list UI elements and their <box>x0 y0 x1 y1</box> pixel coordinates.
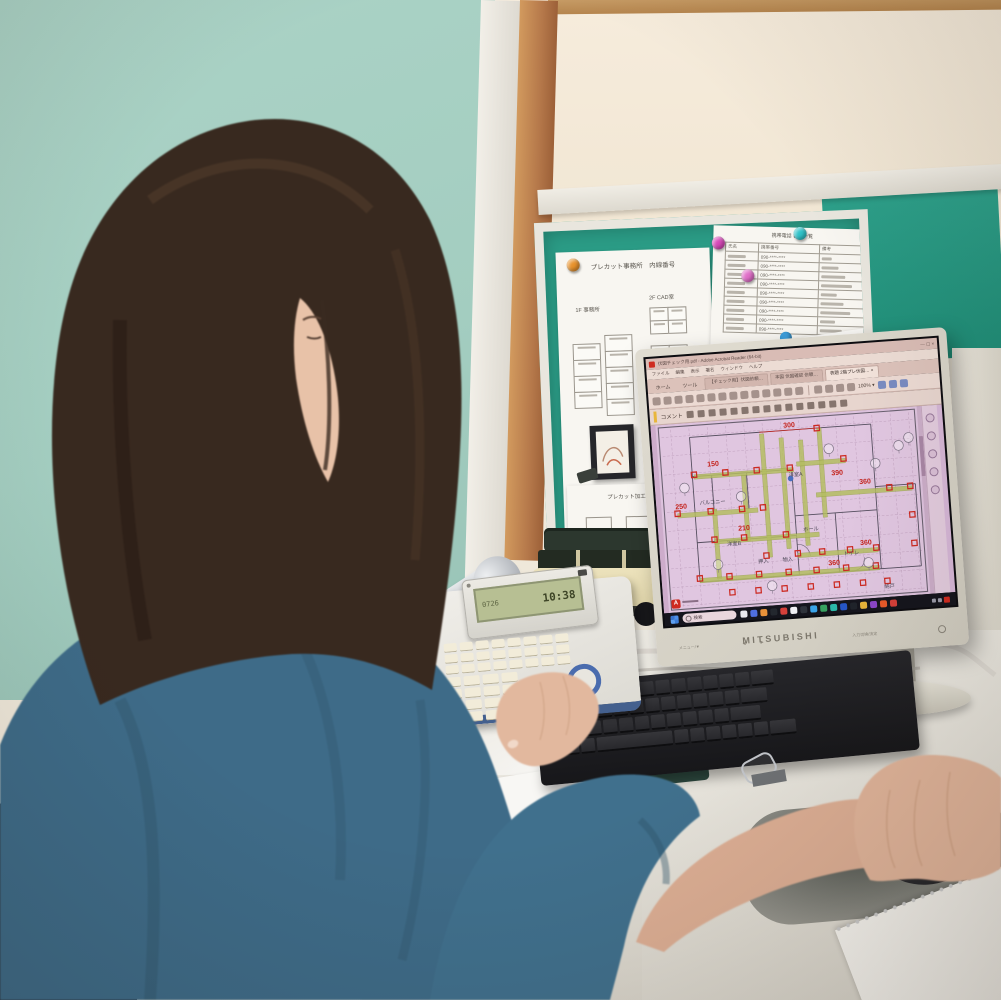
person-left-hand <box>496 672 599 766</box>
person <box>0 0 1001 1000</box>
person-right-hand <box>854 755 1001 882</box>
office-photo: プレカット事務所 内線番号 1F 事務所 2F CAD室 1F 会議室1081F… <box>0 0 1001 1000</box>
person-hair <box>52 119 462 705</box>
